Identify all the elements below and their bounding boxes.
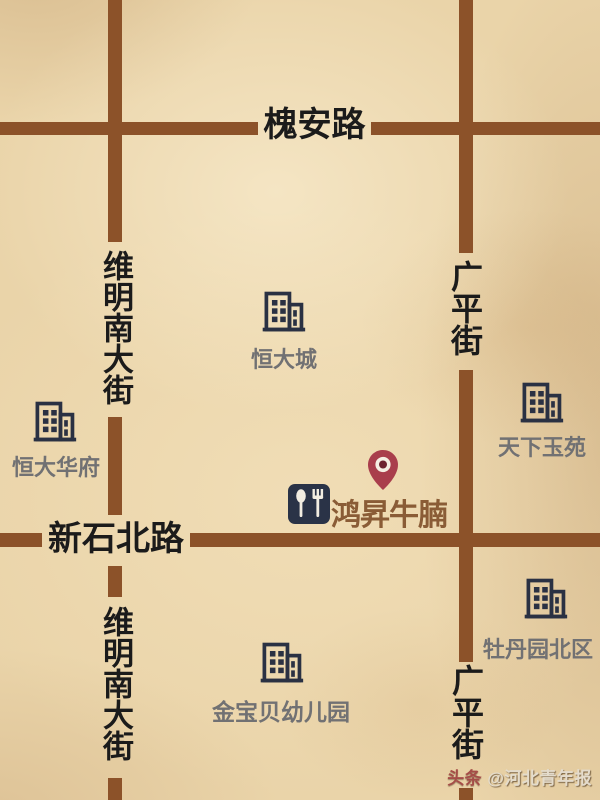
road-label-weiming-top: 维明南大街 <box>97 250 133 405</box>
place-label-tianxiayuyuan: 天下玉苑 <box>482 430 600 462</box>
road-xinshibei-segment-right <box>190 533 600 547</box>
building-icon <box>521 575 569 623</box>
building-icon <box>257 639 305 687</box>
place-label-jinbaobei: 金宝贝幼儿园 <box>211 693 351 727</box>
road-guangping-segment-3 <box>459 788 473 800</box>
road-guangping-segment-2 <box>459 370 473 662</box>
building-icon <box>30 398 78 446</box>
watermark-account: @河北青年报 <box>487 769 592 788</box>
road-label-xinshibei: 新石北路 <box>42 519 190 560</box>
road-weiming-segment-4 <box>108 778 122 800</box>
place-label-hengdacheng: 恒大城 <box>224 342 344 374</box>
road-weiming-segment-3 <box>108 566 122 597</box>
road-guangping-segment-1 <box>459 0 473 253</box>
building-icon <box>259 288 307 336</box>
spoon-fork-icon <box>288 484 330 524</box>
road-label-guangping-bottom: 广平街 <box>448 664 484 760</box>
map-pin-icon <box>368 450 398 490</box>
building-icon <box>517 379 565 427</box>
poi-label-hongsheng-niunan: 鸿昇牛腩 <box>331 490 447 534</box>
road-huaian-segment-right <box>371 122 600 135</box>
place-label-mudanyuan: 牡丹园北区 <box>478 632 598 664</box>
watermark-brand: 头条 <box>447 769 482 788</box>
road-huaian-segment-left <box>0 122 258 135</box>
road-label-huaian: 槐安路 <box>258 105 371 146</box>
road-weiming-segment-1 <box>108 0 122 242</box>
road-label-weiming-bottom: 维明南大街 <box>97 606 133 761</box>
road-xinshibei-segment-left <box>0 533 42 547</box>
location-map: 槐安路 新石北路 维明南大街 维明南大街 广平街 广平街 恒大城 恒大华府 天下… <box>0 0 600 800</box>
road-label-guangping-top: 广平街 <box>447 260 483 356</box>
watermark: 头条 @河北青年报 <box>447 764 592 789</box>
place-label-hengdahuafu: 恒大华府 <box>0 450 116 482</box>
